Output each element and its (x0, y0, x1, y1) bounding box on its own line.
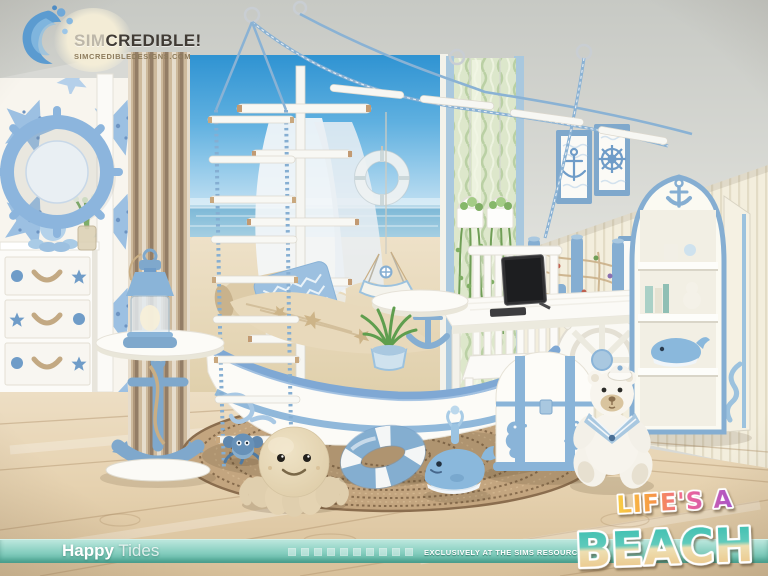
wave-splash-icon (14, 4, 80, 72)
decor-square (288, 548, 296, 556)
collection-title: Happy Tides (62, 541, 159, 561)
tsr-tagline: EXCLUSIVELY AT THE SIMS RESOURCE (424, 548, 583, 557)
badge-line2: BEACH (575, 518, 755, 576)
simcredible-logo: SIMCREDIBLE! SIMCREDIBLEDESIGNS.COM (14, 4, 224, 74)
badge-line1: LIFE'S A (616, 485, 734, 519)
decor-square (301, 548, 309, 556)
decor-square (327, 548, 335, 556)
brand-website: SIMCREDIBLEDESIGNS.COM (74, 52, 202, 61)
promo-image: SIMCREDIBLE! SIMCREDIBLEDESIGNS.COM Happ… (0, 0, 768, 576)
decor-square (340, 548, 348, 556)
decor-square (314, 548, 322, 556)
brand-name: SIMCREDIBLE! (74, 31, 202, 51)
decor-squares (288, 548, 413, 556)
decor-square (405, 548, 413, 556)
decor-square (392, 548, 400, 556)
decor-square (366, 548, 374, 556)
decor-square (353, 548, 361, 556)
decor-square (379, 548, 387, 556)
lifes-a-beach-badge: LIFE'S A BEACH (563, 474, 768, 576)
